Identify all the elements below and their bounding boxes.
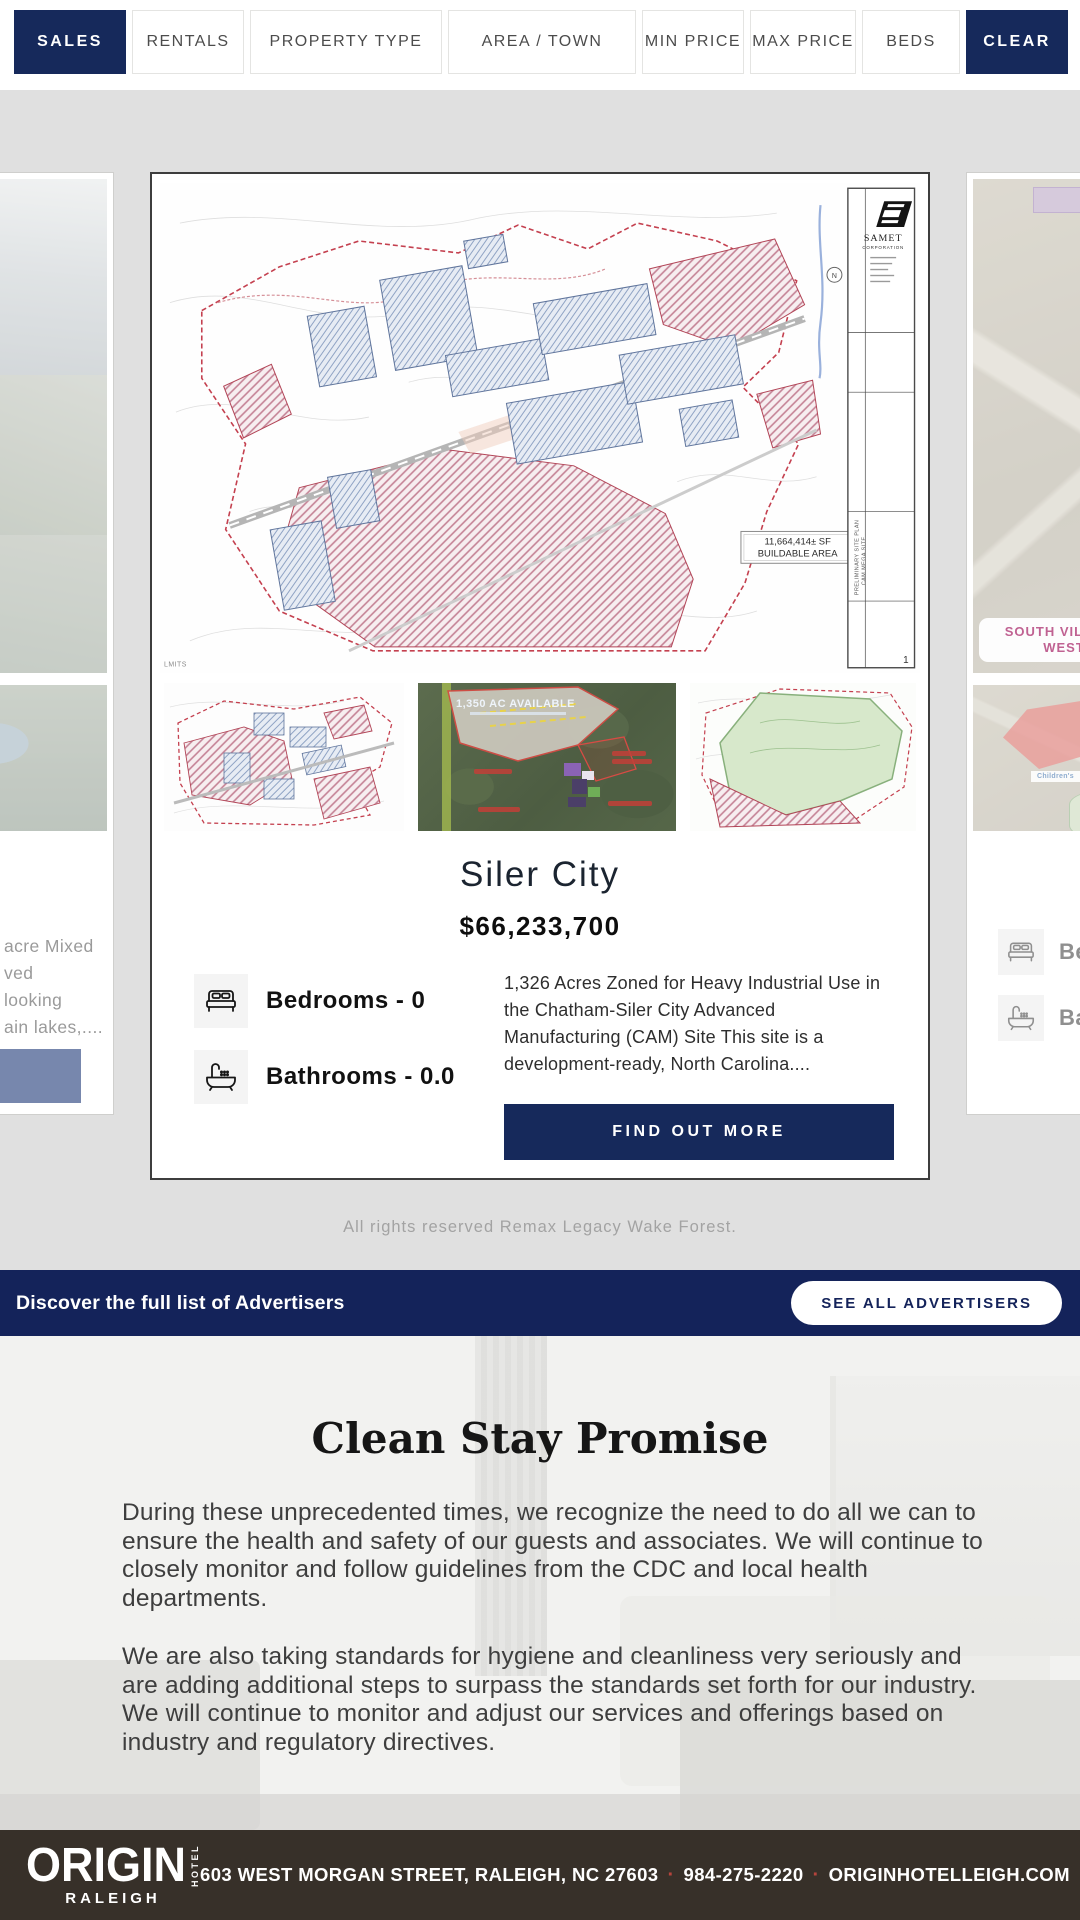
bed-icon <box>194 974 248 1028</box>
footer-address-text: 603 WEST MORGAN STREET, RALEIGH, NC 2760… <box>200 1864 658 1886</box>
clean-stay-body: During these unprecedented times, we rec… <box>122 1499 990 1757</box>
listing-photo <box>0 685 107 831</box>
firm-subtitle: CORPORATION <box>862 245 904 250</box>
bathtub-icon <box>194 1050 248 1104</box>
find-out-more-button[interactable]: FIND OUT MORE <box>504 1104 894 1160</box>
bedrooms-row: Be <box>998 929 1080 975</box>
thumbnail-aerial-map[interactable]: 1,350 AC AVAILABLE <box>418 683 676 831</box>
bathtub-icon <box>998 995 1044 1041</box>
filter-button-clear[interactable]: CLEAR <box>966 10 1068 74</box>
firm-name: SAMET <box>864 233 903 244</box>
footer-phone[interactable]: 984-275-2220 <box>684 1864 804 1886</box>
carousel-card-previous[interactable]: acre Mixed ved looking ain lakes,.... <box>0 172 114 1115</box>
separator-dot: · <box>813 1864 820 1887</box>
listing-price: $66,233,700 <box>160 911 920 942</box>
boundary-label-fragment: LMITS <box>164 662 187 669</box>
clean-stay-title: Clean Stay Promise <box>0 1414 1080 1463</box>
bathrooms-row: Bathrooms - 0.0 <box>194 1050 504 1104</box>
footer-website[interactable]: ORIGINHOTELLEIGH.COM <box>829 1864 1070 1886</box>
bed-icon <box>998 929 1044 975</box>
bedrooms-label-fragment: Be <box>1059 939 1080 965</box>
listing-card-siler-city: 11,664,414± SF BUILDABLE AREA N <box>150 172 930 1180</box>
filter-bar: SALES RENTALS PROPERTY TYPE AREA / TOWN … <box>0 0 1080 90</box>
titleblock: SAMET CORPORATION PRELIMINARY SITE PLAN … <box>848 188 915 667</box>
listing-details: Bedrooms - 0 Bathrooms - 0.0 <box>160 970 920 1160</box>
filter-button-property-type[interactable]: PROPERTY TYPE <box>250 10 442 74</box>
siteplan-image[interactable]: 11,664,414± SF BUILDABLE AREA N <box>160 182 920 674</box>
see-all-advertisers-button[interactable]: SEE ALL ADVERTISERS <box>791 1281 1062 1325</box>
carousel-card-next[interactable]: SOUTH VILLAGE WEST Children's Be <box>966 172 1080 1115</box>
buildable-area-label: 11,664,414± SF BUILDABLE AREA <box>741 531 854 563</box>
advertisers-banner-text: Discover the full list of Advertisers <box>16 1292 345 1315</box>
map-area-label: SOUTH VILLAGE WEST <box>979 618 1080 662</box>
listing-title: Siler City <box>160 855 920 895</box>
separator-dot: · <box>667 1864 674 1887</box>
thumbnail-row: 1,350 AC AVAILABLE <box>160 683 920 831</box>
filter-button-beds[interactable]: BEDS <box>862 10 960 74</box>
svg-text:BUILDABLE AREA: BUILDABLE AREA <box>758 548 838 559</box>
map-parcel <box>1033 187 1080 213</box>
listing-description: 1,326 Acres Zoned for Heavy Industrial U… <box>504 970 894 1078</box>
bathrooms-row: Ba <box>998 995 1080 1041</box>
bathrooms-label: Bathrooms - 0.0 <box>266 1063 455 1091</box>
thumbnail-landplan[interactable] <box>690 683 916 831</box>
sheet-number: 1 <box>903 655 909 666</box>
origin-hotel-logo[interactable]: ORIGIN HOTEL RALEIGH <box>26 1844 200 1907</box>
filter-button-sales[interactable]: SALES <box>14 10 126 74</box>
bedrooms-label: Bedrooms - 0 <box>266 987 425 1015</box>
bathrooms-label-fragment: Ba <box>1059 1005 1080 1031</box>
find-out-more-button-partial[interactable] <box>0 1049 81 1103</box>
footer-contact: 603 WEST MORGAN STREET, RALEIGH, NC 2760… <box>200 1864 1070 1887</box>
map-parcel-red <box>1003 699 1080 769</box>
listing-photo <box>973 179 1080 673</box>
filter-button-max-price[interactable]: MAX PRICE <box>750 10 856 74</box>
logo-city-text: RALEIGH <box>65 1890 161 1907</box>
thumbnail-siteplan[interactable] <box>164 683 404 831</box>
filter-button-min-price[interactable]: MIN PRICE <box>642 10 744 74</box>
bedrooms-row: Bedrooms - 0 <box>194 974 504 1028</box>
logo-origin-text: ORIGIN <box>26 1842 186 1888</box>
svg-text:CAM MEGA SITE: CAM MEGA SITE <box>861 536 867 585</box>
map-sublabel: Children's <box>1031 771 1080 782</box>
clean-stay-section: Clean Stay Promise During these unpreced… <box>0 1336 1080 1830</box>
thumbnail-map[interactable]: Children's <box>973 685 1080 831</box>
filter-button-rentals[interactable]: RENTALS <box>132 10 244 74</box>
svg-text:11,664,414± SF: 11,664,414± SF <box>764 536 831 547</box>
logo-hotel-text: HOTEL <box>190 1844 200 1887</box>
advertisers-banner: Discover the full list of Advertisers SE… <box>0 1270 1080 1336</box>
listing-photo <box>0 375 107 535</box>
map-parcel-green <box>1069 789 1080 831</box>
clean-stay-paragraph: During these unprecedented times, we rec… <box>122 1499 990 1613</box>
filter-button-area-town[interactable]: AREA / TOWN <box>448 10 636 74</box>
listing-photo <box>0 535 107 673</box>
page: SALES RENTALS PROPERTY TYPE AREA / TOWN … <box>0 0 1080 1920</box>
carousel-copyright: All rights reserved Remax Legacy Wake Fo… <box>0 1218 1080 1237</box>
svg-text:PRELIMINARY SITE PLAN: PRELIMINARY SITE PLAN <box>854 520 860 595</box>
thumbnail-map-label: 1,350 AC AVAILABLE <box>456 698 575 710</box>
clean-stay-paragraph: We are also taking standards for hygiene… <box>122 1643 990 1757</box>
listing-photo <box>0 179 107 375</box>
svg-text:N: N <box>832 273 837 280</box>
footer: ORIGIN HOTEL RALEIGH 603 WEST MORGAN STR… <box>0 1830 1080 1920</box>
